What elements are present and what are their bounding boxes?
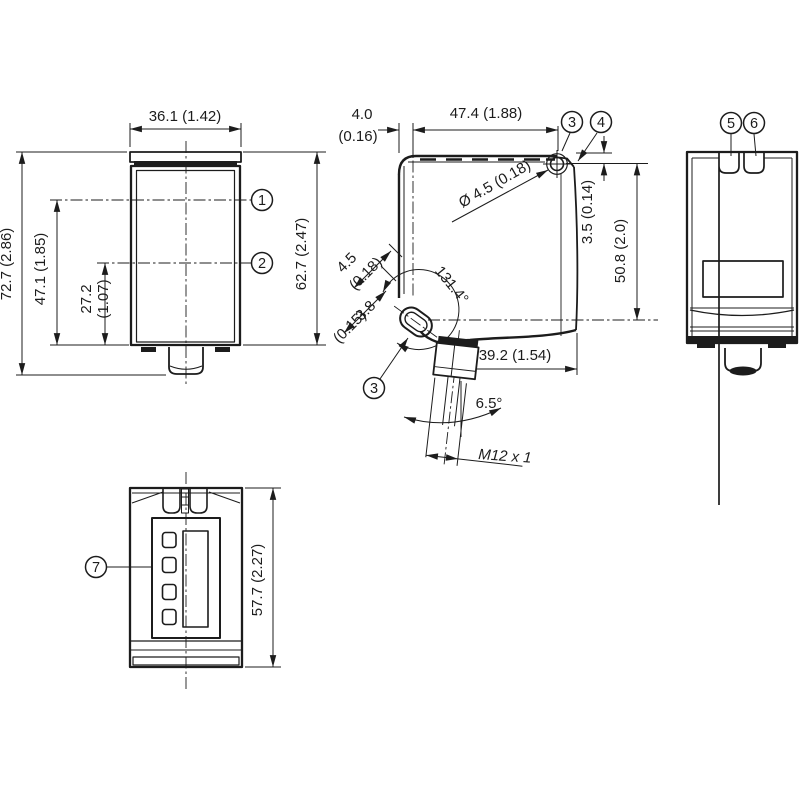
side-dim-depth-label: 39.2 (1.54) [479,347,552,364]
callout-4-label: 4 [597,115,605,131]
callout-2: 2 [252,253,273,274]
back-housing-outline [687,152,797,343]
callout-2-label: 2 [258,256,266,272]
callout-6: 6 [744,113,765,157]
panel-key-3 [163,585,177,600]
bottom-view: 7 57.7 (2.27) [86,472,282,690]
callout-7-label: 7 [92,560,100,576]
callout-1-label: 1 [258,193,266,209]
front-view: 36.1 (1.42) 72.7 (2.86) 47.1 (1.85) 27.2… [0,108,326,386]
callout-3t-leader [562,133,570,151]
back-base-band [688,336,796,342]
panel-key-4 [163,610,177,625]
back-view: 5 6 [687,113,797,506]
connector-body [433,343,478,380]
connector-thread-dim [426,455,458,459]
callout-3b-leader [380,338,408,379]
drawing-canvas: 36.1 (1.42) 72.7 (2.86) 47.1 (1.85) 27.2… [0,0,800,800]
side-dim-holetop-label: 3.5 (0.14) [579,180,596,244]
side-thread-label: M12 x 1 [478,446,532,467]
bottom-seam-lines [182,497,189,505]
callout-3-bottom: 3 [364,338,409,399]
front-feet [141,347,230,352]
side-dim-vspan-label: 50.8 (2.0) [612,219,629,283]
back-inner-border [692,158,792,336]
front-dim-width-ext [130,123,241,147]
front-dim-axis2-label-in: (1.07) [95,279,112,318]
back-band-curve [690,310,794,316]
callout-3b-label: 3 [370,381,378,397]
back-button-5 [719,153,739,505]
side-dim-edge-in: (0.16) [338,128,377,145]
side-slot-angle-label: 131.4° [431,263,472,308]
panel-display [183,531,208,627]
side-view: 131.4° 4.5 (0.18) 3.8 (0.15) 3 4.0 (0.16… [330,105,658,476]
callout-3-top: 3 [562,112,583,152]
callout-4-leader [578,133,597,161]
front-dim-width-label: 36.1 (1.42) [149,108,222,125]
front-dim-total-label: 72.7 (2.86) [0,228,15,301]
side-angle-label: 6.5° [476,395,503,412]
callout-4: 4 [578,112,612,162]
side-right-edge [574,167,577,330]
callout-5-label: 5 [727,116,735,132]
front-housing-outline [131,166,240,345]
panel-key-1 [163,533,177,548]
side-mounting-slot [388,297,445,347]
front-dim-axis2-label-mm: 27.2 [78,284,95,313]
back-label-window [703,261,783,297]
panel-key-2 [163,558,177,573]
callout-7: 7 [86,557,152,578]
side-dim-edge-mm: 4.0 [352,106,373,123]
side-right-dim-ext [566,153,648,164]
dimensional-drawing: 36.1 (1.42) 72.7 (2.86) 47.1 (1.85) 27.2… [0,0,800,800]
callout-1: 1 [252,190,273,211]
callout-6-label: 6 [750,116,758,132]
callout-5: 5 [721,113,742,157]
front-top-cap [130,152,241,162]
back-button-6 [744,153,764,173]
side-dim-span-label: 47.4 (1.88) [450,105,523,122]
back-band-line-2 [690,327,794,331]
callout-3t-label: 3 [568,115,576,131]
front-dim-housing-ext [243,152,326,345]
bottom-dim-label: 57.7 (2.27) [249,544,266,617]
front-dim-axis1-label: 47.1 (1.85) [32,233,49,306]
back-connector-face [730,367,757,376]
front-dim-housing-label: 62.7 (2.47) [293,218,310,291]
front-face-inner [137,171,235,343]
side-top-dim-ext [399,123,558,158]
